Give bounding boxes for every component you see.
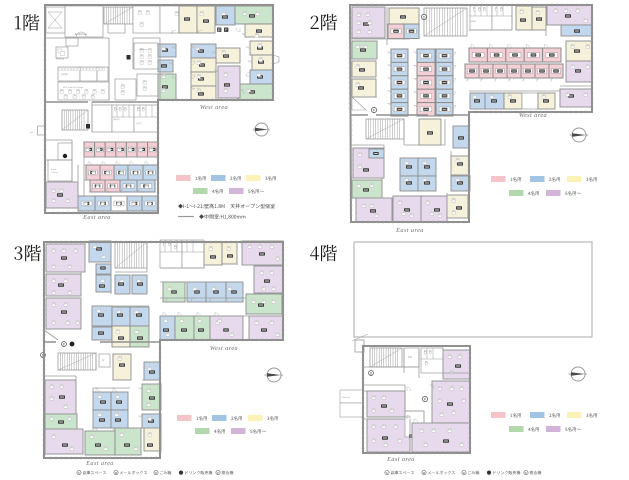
svg-text:Eat-in: Eat-in bbox=[51, 168, 57, 171]
svg-text:S: S bbox=[570, 133, 572, 137]
svg-text:(L)WC: (L)WC bbox=[136, 123, 143, 125]
svg-text:DN: DN bbox=[408, 355, 412, 359]
svg-text:S: S bbox=[265, 373, 267, 377]
svg-text:Entrance: Entrance bbox=[75, 32, 87, 36]
svg-text:Ent: Ent bbox=[30, 131, 34, 134]
svg-text:Locker: Locker bbox=[61, 73, 68, 76]
svg-text:Roof trry: Roof trry bbox=[342, 396, 350, 399]
svg-text:(M)WC: (M)WC bbox=[113, 119, 120, 121]
svg-text:East area: East area bbox=[395, 227, 424, 234]
svg-text:East area: East area bbox=[82, 214, 111, 221]
svg-text:S: S bbox=[569, 372, 571, 376]
svg-text:West area: West area bbox=[519, 112, 547, 119]
svg-text:East area: East area bbox=[85, 460, 114, 467]
svg-text:N: N bbox=[585, 372, 587, 376]
svg-text:East area: East area bbox=[386, 456, 415, 463]
svg-text:S: S bbox=[253, 128, 255, 132]
svg-text:Meeting: Meeting bbox=[139, 48, 148, 51]
svg-text:P: P bbox=[217, 471, 219, 475]
svg-text:Corner: Corner bbox=[51, 171, 58, 174]
svg-text:W.E SotitTrill Lounge: W.E SotitTrill Lounge bbox=[63, 86, 84, 89]
svg-text:West area: West area bbox=[200, 104, 228, 111]
svg-text:N: N bbox=[268, 128, 270, 132]
svg-text:Waiting: Waiting bbox=[56, 58, 65, 61]
svg-text:S: S bbox=[386, 471, 388, 475]
svg-text:D: D bbox=[155, 471, 157, 475]
svg-text:P: P bbox=[525, 471, 527, 475]
svg-text:N: N bbox=[281, 373, 283, 377]
svg-text:IV: IV bbox=[102, 359, 105, 362]
svg-text:West area: West area bbox=[210, 345, 238, 352]
svg-text:S: S bbox=[78, 471, 80, 475]
svg-text:N: N bbox=[586, 133, 588, 137]
svg-text:M.AC: M.AC bbox=[471, 20, 477, 23]
svg-text:P: P bbox=[63, 342, 65, 346]
svg-text:D: D bbox=[463, 471, 465, 475]
